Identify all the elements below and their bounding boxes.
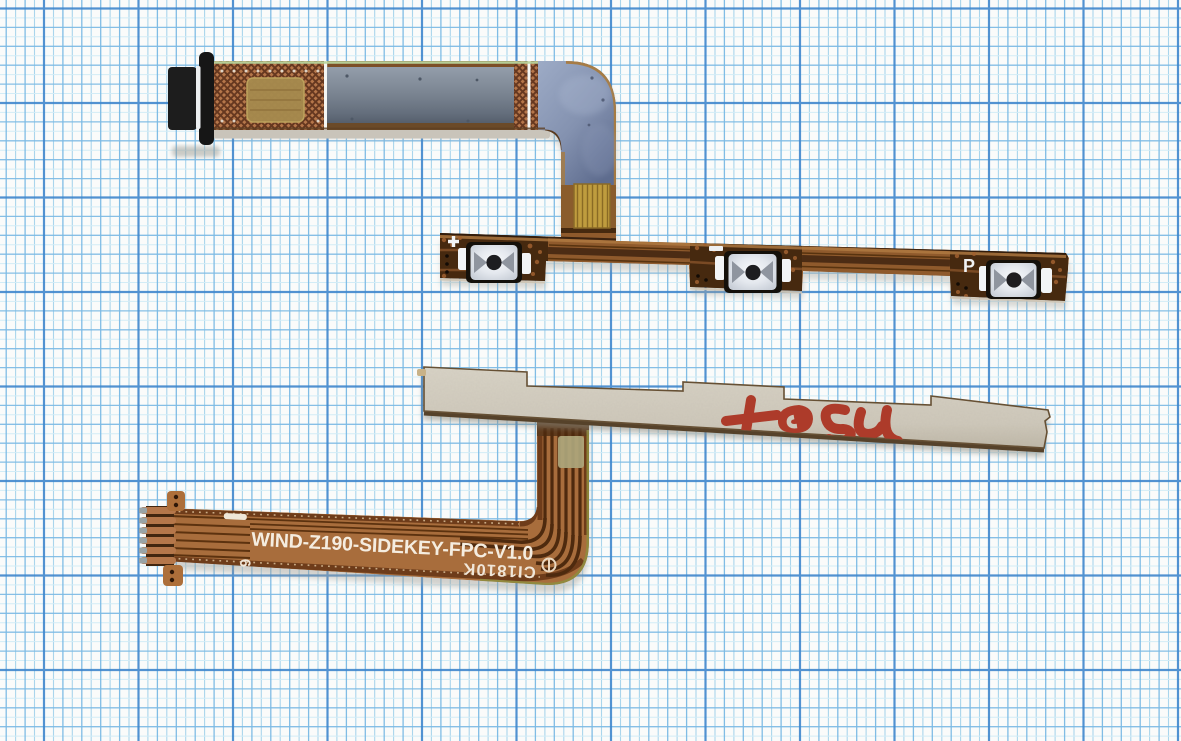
svg-text:P: P <box>963 256 975 276</box>
svg-text:CI1810K: CI1810K <box>462 559 536 581</box>
svg-text:6: 6 <box>236 559 253 568</box>
